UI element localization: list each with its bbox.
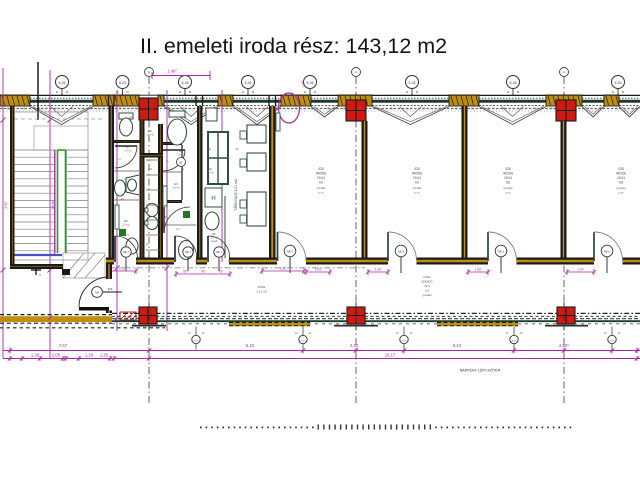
svg-text:1: 1: [39, 273, 41, 277]
svg-text:NE-7: NE-7: [185, 250, 191, 254]
svg-text:KÖZL: KÖZL: [423, 275, 431, 279]
svg-text:028: 028: [414, 167, 420, 171]
svg-text:K-03: K-03: [245, 81, 252, 85]
svg-text:K-10: K-10: [402, 340, 407, 342]
svg-text:2,77: 2,77: [414, 191, 420, 195]
svg-text:K-03: K-03: [182, 81, 189, 85]
svg-text:III: III: [622, 90, 625, 94]
svg-text:E: E: [242, 90, 244, 94]
svg-text:1,40*: 1,40*: [167, 69, 177, 74]
svg-text:P: P: [148, 71, 150, 75]
svg-text:028: 028: [318, 167, 324, 171]
svg-text:E10: E10: [108, 287, 113, 291]
svg-text:NAPFÉNY LÉPCSŐTÉR: NAPFÉNY LÉPCSŐTÉR: [460, 368, 501, 373]
svg-text:gr: gr: [182, 167, 184, 171]
svg-text:m:: m:: [119, 158, 122, 161]
svg-text:LEKEDŐ: LEKEDŐ: [421, 279, 433, 284]
svg-text:90: 90: [201, 270, 205, 274]
svg-text:m2: m2: [415, 181, 420, 185]
svg-text:K-03: K-03: [119, 81, 126, 85]
svg-text:P: P: [355, 71, 357, 75]
svg-text:19,04: 19,04: [504, 176, 512, 180]
svg-text:K-03: K-03: [59, 81, 66, 85]
svg-text:31,6: 31,6: [424, 284, 430, 288]
svg-text:2,77: 2,77: [505, 191, 511, 195]
svg-text:1,9 m2: 1,9 m2: [172, 187, 180, 190]
svg-text:II. emeleti iroda rész: 143,12: II. emeleti iroda rész: 143,12 m2: [140, 34, 447, 58]
svg-text:1,28: 1,28: [31, 353, 40, 358]
svg-text:III: III: [66, 90, 69, 94]
svg-text:III: III: [314, 90, 317, 94]
svg-text:m2: m2: [425, 289, 429, 293]
svg-text:m2: m2: [619, 181, 624, 185]
svg-text:1,9 m2: 1,9 m2: [122, 224, 130, 227]
svg-text:2,40: 2,40: [350, 343, 359, 348]
svg-text:E: E: [304, 90, 306, 94]
svg-text:NE-2: NE-2: [398, 249, 404, 253]
svg-text:1,00: 1,00: [475, 268, 481, 272]
svg-text:NE-2: NE-2: [498, 249, 504, 253]
svg-text:III: III: [517, 90, 520, 94]
svg-text:2,1: 2,1: [176, 227, 180, 231]
svg-text:WC: WC: [174, 182, 178, 186]
svg-text:K-03: K-03: [409, 81, 416, 85]
svg-text:5,10: 5,10: [246, 343, 255, 348]
svg-text:NE-7: NE-7: [123, 250, 129, 254]
svg-text:11,2 m2: 11,2 m2: [257, 290, 267, 294]
svg-text:IRODA: IRODA: [316, 172, 327, 176]
svg-text:IRODA: IRODA: [616, 172, 627, 176]
svg-text:1,50: 1,50: [280, 267, 286, 271]
svg-text:WC: WC: [148, 129, 152, 133]
svg-text:WC: WC: [179, 149, 183, 153]
svg-text:1,9 m2: 1,9 m2: [124, 150, 132, 153]
svg-text:16,17: 16,17: [385, 353, 396, 358]
svg-text:E: E: [179, 90, 181, 94]
svg-text:m2: m2: [319, 181, 324, 185]
svg-text:K-03: K-03: [307, 81, 314, 85]
svg-text:K-10: K-10: [194, 340, 199, 342]
svg-text:E: E: [56, 90, 58, 94]
svg-text:P: P: [563, 71, 565, 75]
svg-text:19,04: 19,04: [617, 176, 625, 180]
svg-text:K-03: K-03: [615, 81, 622, 85]
svg-text:E: E: [406, 90, 408, 94]
svg-text:E: E: [612, 90, 614, 94]
svg-text:H: H: [211, 196, 215, 202]
svg-text:greslap: greslap: [503, 186, 513, 190]
svg-text:1,9 m2: 1,9 m2: [177, 154, 185, 157]
svg-text:19,04: 19,04: [317, 176, 325, 180]
svg-text:III: III: [189, 90, 192, 94]
svg-text:028: 028: [505, 167, 511, 171]
svg-text:5,10: 5,10: [453, 343, 462, 348]
svg-text:028: 028: [618, 167, 624, 171]
svg-text:greslap: greslap: [422, 293, 432, 297]
svg-text:2,60*: 2,60*: [559, 343, 569, 348]
svg-text:K-10: K-10: [610, 340, 615, 342]
svg-text:WC: WC: [124, 219, 128, 223]
svg-text:III: III: [416, 90, 419, 94]
svg-text:19,04: 19,04: [413, 176, 421, 180]
svg-text:mosd: mosd: [211, 239, 218, 243]
svg-text:1,9: 1,9: [125, 233, 129, 237]
svg-text:NE: NE: [95, 291, 99, 295]
svg-text:7,67: 7,67: [59, 343, 68, 348]
svg-text:60: 60: [219, 270, 223, 274]
svg-text:III: III: [126, 90, 129, 94]
svg-text:2,87: 2,87: [4, 201, 8, 208]
svg-text:greslap: greslap: [316, 186, 326, 190]
svg-text:III: III: [252, 90, 255, 94]
svg-text:TÁRGYALÓ 9,21 m2: TÁRGYALÓ 9,21 m2: [233, 179, 238, 211]
svg-text:K-10: K-10: [301, 340, 306, 342]
svg-text:WC: WC: [212, 232, 216, 236]
svg-text:WC: WC: [126, 145, 130, 149]
svg-text:KÖZL.: KÖZL.: [258, 285, 267, 289]
svg-text:2,77: 2,77: [318, 191, 324, 195]
svg-text:WC: WC: [208, 167, 212, 171]
svg-text:NE-2: NE-2: [287, 249, 293, 253]
svg-text:60: 60: [183, 270, 187, 274]
svg-text:1,9 m2: 1,9 m2: [146, 134, 154, 137]
svg-text:1,25: 1,25: [100, 353, 109, 358]
svg-text:IRODA: IRODA: [412, 172, 423, 176]
svg-text:IRODA: IRODA: [503, 172, 514, 176]
svg-text:NE: NE: [179, 162, 183, 165]
svg-text:1,00: 1,00: [577, 268, 583, 272]
svg-text:1,00: 1,00: [119, 267, 125, 271]
svg-text:2,05: 2,05: [52, 353, 61, 358]
svg-text:NE-7: NE-7: [216, 250, 222, 254]
svg-text:NE-2: NE-2: [604, 249, 610, 253]
svg-text:K-10: K-10: [512, 340, 517, 342]
svg-text:1,9 m2: 1,9 m2: [206, 172, 214, 175]
svg-text:1,00: 1,00: [375, 268, 381, 272]
svg-text:1,20: 1,20: [85, 353, 94, 358]
svg-text:E: E: [507, 90, 509, 94]
svg-text:greslap: greslap: [616, 186, 626, 190]
svg-text:K-03: K-03: [510, 81, 517, 85]
svg-text:2,77: 2,77: [618, 191, 624, 195]
svg-text:greslap: greslap: [412, 186, 422, 190]
svg-text:m2: m2: [506, 181, 511, 185]
